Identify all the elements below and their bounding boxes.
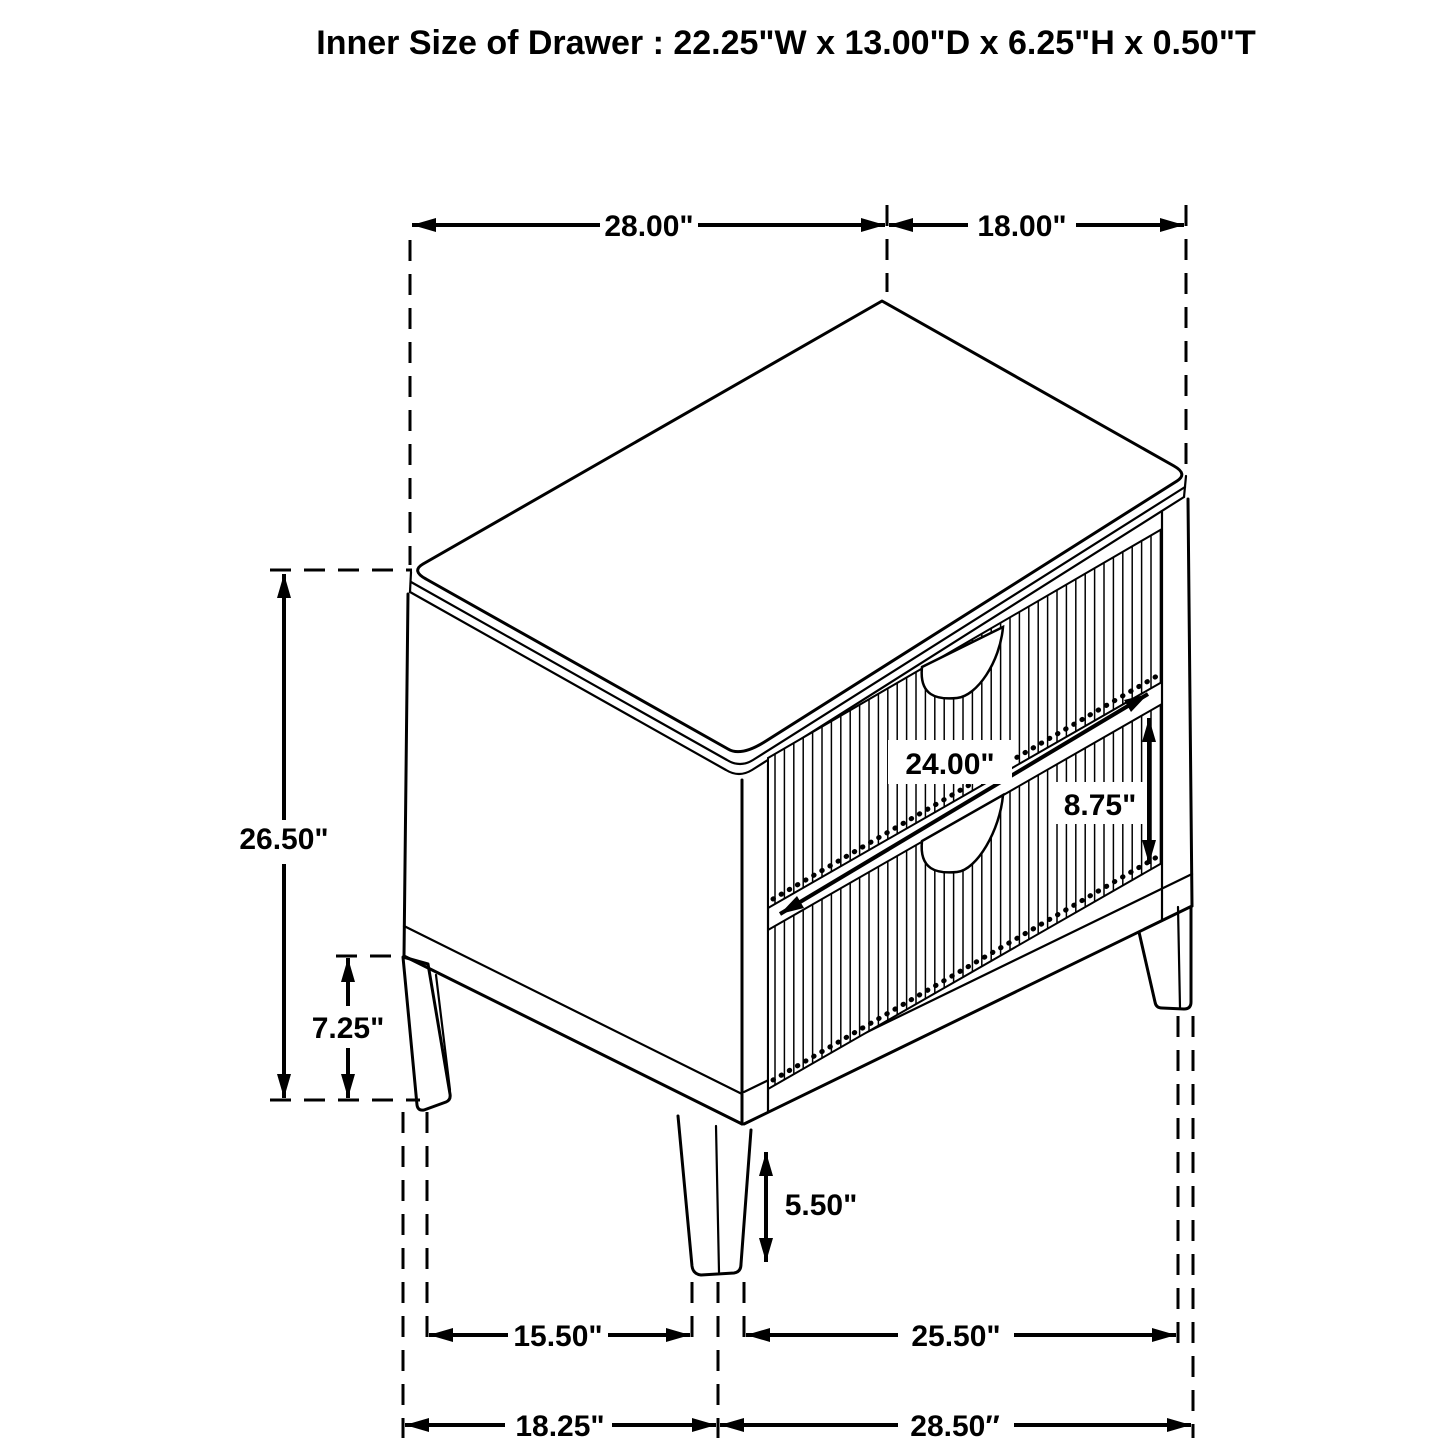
dim-leg-height: 5.50" — [759, 1152, 870, 1262]
dimension-diagram: Inner Size of Drawer : 22.25"W x 13.00"D… — [0, 0, 1445, 1445]
dim-floor-span-left: 15.50" — [429, 1320, 690, 1353]
dim-base-width: 18.25" — [405, 1410, 716, 1443]
drawing-title: Inner Size of Drawer : 22.25"W x 13.00"D… — [316, 24, 1256, 62]
technical-drawing-page: Inner Size of Drawer : 22.25"W x 13.00"D… — [0, 0, 1445, 1445]
dim-top-width-label: 28.00" — [604, 210, 693, 243]
dim-base-height-label: 7.25" — [312, 1012, 385, 1045]
dim-drawer-front-height-label: 8.75" — [1064, 789, 1137, 822]
dim-top-depth: 18.00" — [889, 210, 1184, 243]
rear-right-leg — [1139, 907, 1191, 1009]
dim-floor-span-right: 25.50" — [746, 1320, 1176, 1353]
dim-top-width: 28.00" — [412, 210, 885, 243]
dim-leg-height-label: 5.50" — [785, 1189, 858, 1222]
dim-base-depth-label: 28.50″ — [910, 1410, 999, 1443]
dim-floor-span-left-label: 15.50" — [513, 1320, 602, 1353]
dim-top-depth-label: 18.00" — [977, 210, 1066, 243]
front-leg — [678, 1116, 751, 1275]
dim-floor-span-right-label: 25.50" — [911, 1320, 1000, 1353]
dim-overall-height-label: 26.50" — [239, 823, 328, 856]
rear-left-leg — [403, 957, 450, 1110]
dim-base-height: 7.25" — [312, 958, 385, 1098]
dim-base-width-label: 18.25" — [515, 1410, 604, 1443]
dim-base-depth: 28.50″ — [720, 1410, 1191, 1443]
dim-drawer-width-label: 24.00" — [905, 748, 994, 781]
